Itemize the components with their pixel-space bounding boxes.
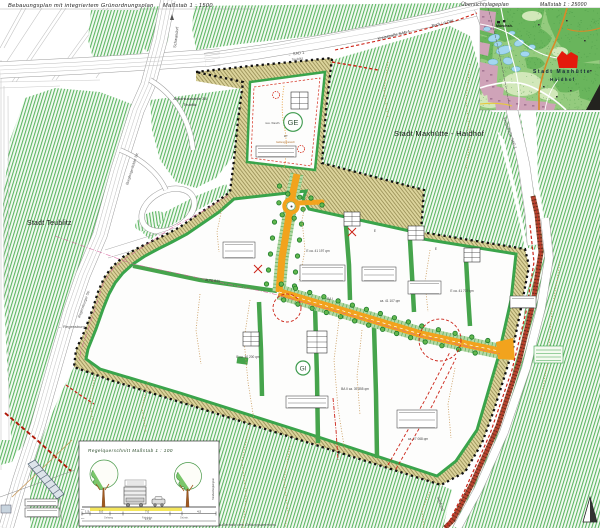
svg-text:Gehweg: Gehweg	[104, 517, 114, 520]
svg-text:Übersichtslageplan: Übersichtslageplan	[461, 1, 509, 8]
svg-text:E: E	[374, 229, 376, 233]
svg-text:Fahrbahn: Fahrbahn	[142, 517, 153, 520]
svg-text:ET: ET	[284, 134, 288, 138]
svg-text:1,5: 1,5	[85, 509, 90, 513]
svg-text:7,0: 7,0	[145, 509, 150, 513]
svg-text:Teublitz: Teublitz	[183, 102, 197, 107]
svg-text:Regelquerschnitt Maßstab 1: Regelquerschnitt Maßstab 1 : 100	[88, 448, 173, 453]
svg-text:Maßstab 1 : 25000: Maßstab 1 : 25000	[540, 2, 587, 8]
svg-text:GI: GI	[300, 366, 307, 373]
svg-text:Geltungsbereich: Geltungsbereich	[276, 140, 295, 144]
svg-text:Bebauungsplan mit integriertem: Bebauungsplan mit integriertem Grünordnu…	[8, 3, 154, 9]
svg-text:E ca. 41 197 qm: E ca. 41 197 qm	[306, 249, 330, 253]
svg-text:BA II ca. 39 855 qm: BA II ca. 39 855 qm	[341, 387, 369, 391]
svg-text:ca. 27 068 qm: ca. 27 068 qm	[408, 437, 429, 441]
svg-text:4,5: 4,5	[197, 509, 202, 513]
svg-text:ca. 41 107 qm: ca. 41 107 qm	[380, 299, 401, 303]
svg-text:max. Wandh.: max. Wandh.	[265, 121, 280, 125]
svg-text:Stadt Teublitz: Stadt Teublitz	[27, 220, 72, 227]
svg-text:E: E	[435, 247, 437, 251]
svg-text:Stadt Maxhütte - Haidhof: Stadt Maxhütte - Haidhof	[394, 129, 485, 138]
svg-text:Haidhof: Haidhof	[550, 77, 575, 82]
svg-text:Stadt Maxhütte: Stadt Maxhütte	[533, 69, 591, 75]
svg-text:E ca. 30 200 qm: E ca. 30 200 qm	[236, 355, 260, 359]
svg-text:BA I: BA I	[327, 297, 333, 301]
svg-text:Maßstab 1 : 1500: Maßstab 1 : 1500	[163, 3, 213, 9]
svg-text:Grünstr.: Grünstr.	[180, 517, 189, 520]
svg-text:← Regensburg: ← Regensburg	[58, 324, 85, 329]
svg-text:GE: GE	[288, 118, 299, 127]
svg-text:Straßenbegleitgrün: Straßenbegleitgrün	[211, 477, 215, 500]
svg-text:Münchsh.: Münchsh.	[496, 24, 513, 28]
svg-text:Anschlussstelle 38: Anschlussstelle 38	[173, 96, 207, 101]
svg-text:5,0: 5,0	[99, 509, 104, 513]
svg-text:E ca. 41 719 qm: E ca. 41 719 qm	[450, 289, 474, 293]
